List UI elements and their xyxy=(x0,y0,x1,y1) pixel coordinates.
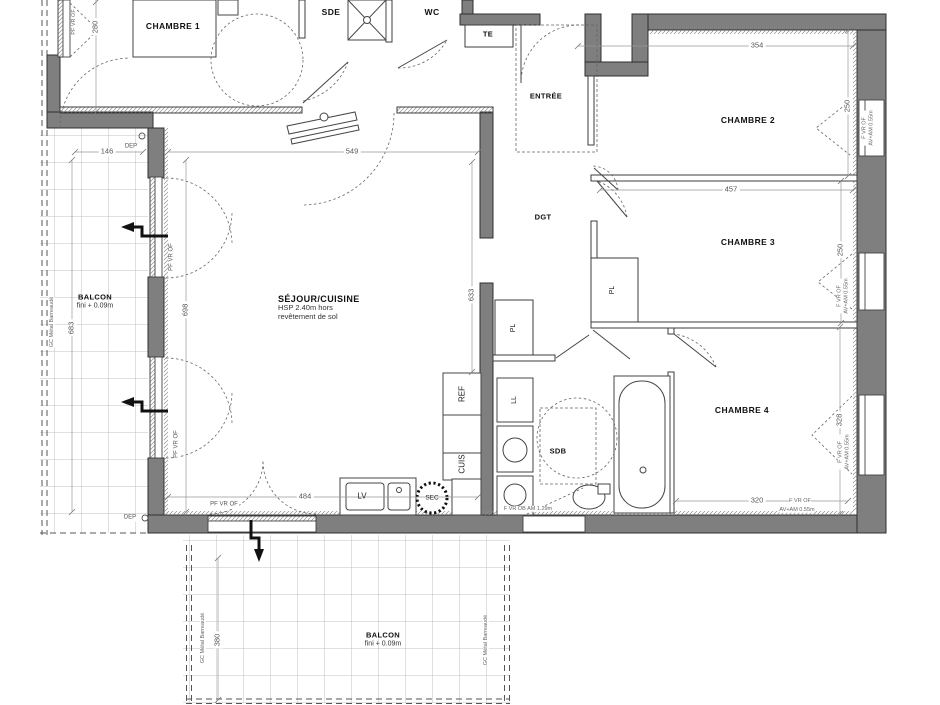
door-label-sejour-south: PF VR OF xyxy=(209,502,239,509)
railing-label-bottom-left: GC Métal Barreaudé xyxy=(200,613,206,663)
dim-354: 354 xyxy=(749,42,766,51)
window-label-chambre1: PF VR OF xyxy=(71,9,77,34)
dim-683: 683 xyxy=(68,320,77,337)
window-label-chambre2: F VR OF AV+AM 0.55m xyxy=(861,110,874,145)
window-chambre2-height: AV+AM 0.55m xyxy=(868,110,875,145)
dim-320: 320 xyxy=(749,497,766,506)
railing-label-left: GC Métal Barreaudé xyxy=(49,297,55,347)
plan-drawing xyxy=(0,0,940,705)
dim-250-chambre3: 250 xyxy=(837,242,846,259)
room-label-balcon-left: BALCON fini + 0.09m xyxy=(77,294,113,311)
dim-484: 484 xyxy=(297,493,314,502)
kitchen-label-cuis: CUIS xyxy=(457,454,466,473)
dim-549: 549 xyxy=(344,148,361,157)
window-label-chambre3: F VR OF AV+AM 0.55m xyxy=(836,278,849,313)
railing-label-bottom-right: GC Métal Barreaudé xyxy=(483,615,489,665)
room-label-te: TE xyxy=(483,31,493,40)
room-label-chambre3: CHAMBRE 3 xyxy=(721,238,775,248)
dim-280: 280 xyxy=(92,19,101,36)
window-label-chambre4-south-type: F VR OF xyxy=(789,498,811,504)
room-label-sejour: SÉJOUR/CUISINE HSP 2.40m hors revêtement… xyxy=(278,294,360,322)
dim-633: 633 xyxy=(468,287,477,304)
balcon-bottom-title: BALCON xyxy=(365,632,401,641)
dep-label-bottom: DEP xyxy=(123,515,137,522)
room-label-dgt: DGT xyxy=(535,214,552,223)
dim-698: 698 xyxy=(182,302,191,319)
dim-457: 457 xyxy=(723,186,740,195)
dim-328: 328 xyxy=(836,412,845,429)
door-label-sejour-1: PF VR OF xyxy=(169,242,176,272)
room-label-entree: ENTRÉE xyxy=(530,93,562,102)
room-label-chambre1: CHAMBRE 1 xyxy=(146,22,200,32)
window-label-chambre4-south-height: AV+AM 0.55m xyxy=(779,507,814,513)
floor-plan: CHAMBRE 1 SDE WC TE ENTRÉE CHAMBRE 2 CHA… xyxy=(0,0,940,705)
washer-label-ll: LL xyxy=(511,396,519,404)
closet-label-pl-chambre3: PL xyxy=(609,286,617,295)
closet-label-pl-dgt: PL xyxy=(510,324,518,333)
window-label-chambre4: F VR OF AV+AM 0.55m xyxy=(837,434,850,469)
dim-146: 146 xyxy=(99,148,116,157)
balcony-bottom xyxy=(183,535,510,704)
window-chambre3-type: F VR OF xyxy=(836,278,843,313)
balcon-left-title: BALCON xyxy=(77,294,113,303)
window-chambre4-height: AV+AM 0.55m xyxy=(844,434,851,469)
window-label-sdb: F VR OB AM 1.29m xyxy=(504,506,552,512)
door-label-sejour-2: PF VR OF xyxy=(174,429,181,459)
room-label-sdb: SDB xyxy=(550,448,567,457)
sejour-subtitle-2: revêtement de sol xyxy=(278,313,360,322)
room-label-chambre2: CHAMBRE 2 xyxy=(721,116,775,126)
room-label-chambre4: CHAMBRE 4 xyxy=(715,406,769,416)
room-label-balcon-bottom: BALCON fini + 0.09m xyxy=(365,632,401,649)
window-chambre4-type: F VR OF xyxy=(837,434,844,469)
room-label-sde: SDE xyxy=(322,8,341,18)
room-label-wc: WC xyxy=(425,8,440,18)
dim-250-chambre2: 250 xyxy=(844,98,853,115)
balcon-bottom-subtitle: fini + 0.09m xyxy=(365,640,401,648)
window-chambre2-type: F VR OF xyxy=(861,110,868,145)
balcon-left-subtitle: fini + 0.09m xyxy=(77,302,113,310)
dishwasher-label-lv: LV xyxy=(357,491,366,500)
dep-label-top: DEP xyxy=(124,144,138,151)
dim-380: 380 xyxy=(214,632,223,649)
fridge-label-ref: REF xyxy=(457,386,466,402)
window-chambre3-height: AV+AM 0.55m xyxy=(843,278,850,313)
dryer-label-sec: SEC xyxy=(425,494,438,501)
